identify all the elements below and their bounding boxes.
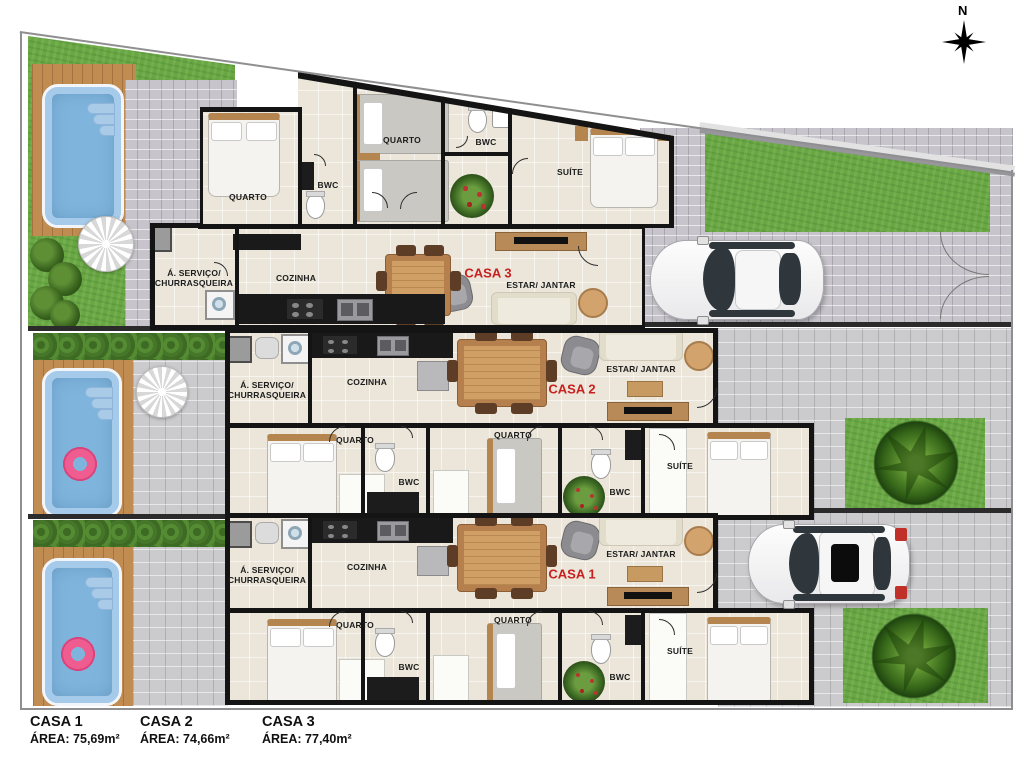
car-icon xyxy=(650,240,824,320)
wall xyxy=(441,152,512,156)
legend-casa3-area: ÁREA: 77,40m² xyxy=(262,732,352,746)
wall xyxy=(225,700,814,705)
pool-steps-icon xyxy=(91,398,113,409)
washing-machine-icon xyxy=(281,519,311,549)
house-name-label: CASA 3 xyxy=(464,266,511,281)
stove-icon xyxy=(323,336,357,354)
wall xyxy=(713,328,718,427)
wall xyxy=(150,223,202,228)
wall xyxy=(426,612,430,705)
double-bed xyxy=(707,432,771,522)
washing-machine-icon xyxy=(281,334,311,364)
bathroom-vanity xyxy=(300,162,314,190)
gate-pillar xyxy=(228,521,252,548)
pool-steps-icon xyxy=(87,103,115,114)
room-label-suite: SUÍTE xyxy=(667,461,693,471)
double-bed xyxy=(208,113,280,197)
legend-casa3-name: CASA 3 xyxy=(262,714,315,730)
pool-steps-icon xyxy=(97,599,113,610)
site-boundary xyxy=(20,708,1013,710)
laundry-basket xyxy=(255,337,279,359)
car-side-window xyxy=(709,310,795,317)
toilet-icon xyxy=(468,108,487,133)
bathroom-vanity xyxy=(625,430,641,460)
pool-steps-icon xyxy=(93,114,115,125)
toilet-icon xyxy=(375,631,395,657)
chair xyxy=(376,271,387,291)
room-label-quarto: QUARTO xyxy=(383,135,421,145)
room-label-cozinha: COZINHA xyxy=(347,377,387,387)
pool-steps-icon xyxy=(99,125,115,136)
legend-casa1-name: CASA 1 xyxy=(30,714,83,730)
chair xyxy=(475,588,497,599)
single-bed xyxy=(487,438,542,517)
room-label-cozinha: COZINHA xyxy=(276,273,316,283)
pool-steps-icon xyxy=(91,588,113,599)
room-label-quarto: QUARTO xyxy=(229,192,267,202)
car-windshield xyxy=(789,533,819,594)
single-bed xyxy=(354,160,449,222)
car-mirror xyxy=(783,600,795,609)
coffee-table xyxy=(627,381,663,397)
car-taillight xyxy=(895,586,907,599)
double-bed xyxy=(267,434,337,522)
wall xyxy=(235,224,239,330)
wall xyxy=(308,513,312,612)
car-side-window xyxy=(793,526,885,533)
round-table xyxy=(684,341,714,371)
stove-icon xyxy=(287,299,323,319)
room-label-quarto: QUARTO xyxy=(494,615,532,625)
house-name-label: CASA 2 xyxy=(548,382,595,397)
room-label-servico: Á. SERVIÇO/ CHURRASQUEIRA xyxy=(228,380,306,400)
fridge-icon xyxy=(417,546,449,576)
dining-table xyxy=(457,524,547,592)
compass-north-label: N xyxy=(958,3,967,18)
wall xyxy=(225,328,718,333)
plant-icon xyxy=(563,661,605,703)
stove-icon xyxy=(323,521,357,539)
wall xyxy=(713,608,814,613)
chair xyxy=(424,245,444,256)
room-label-estar: ESTAR/ JANTAR xyxy=(606,549,675,559)
wall xyxy=(558,612,562,705)
pool-float-icon xyxy=(60,636,96,672)
lot-divider-wall xyxy=(28,514,233,519)
hedge-casa2 xyxy=(33,333,228,360)
wall xyxy=(298,107,302,229)
room-label-suite: SUÍTE xyxy=(667,646,693,656)
wall xyxy=(713,513,718,612)
nightstand xyxy=(575,126,588,141)
room-label-bwc: BWC xyxy=(318,180,339,190)
tv-console xyxy=(607,587,689,606)
room-label-servico: Á. SERVIÇO/ CHURRASQUEIRA xyxy=(155,268,233,288)
bathroom-vanity xyxy=(625,615,641,645)
room-label-bwc: BWC xyxy=(610,487,631,497)
shower-icon xyxy=(367,492,419,515)
single-bed xyxy=(354,94,449,154)
car-icon xyxy=(748,524,910,604)
legend-casa2-area: ÁREA: 74,66m² xyxy=(140,732,230,746)
sofa xyxy=(599,329,683,361)
wall xyxy=(809,608,814,705)
room-label-bwc: BWC xyxy=(476,137,497,147)
toilet-icon xyxy=(591,637,611,664)
lot-divider-wall xyxy=(640,322,1013,327)
car-side-window xyxy=(793,594,885,601)
chair xyxy=(447,545,458,567)
car-rear-window xyxy=(779,253,801,305)
room-label-estar: ESTAR/ JANTAR xyxy=(506,280,575,290)
pool-steps-icon xyxy=(97,409,113,420)
wall xyxy=(641,612,645,705)
gate-pillar xyxy=(228,336,252,363)
pool-steps-icon xyxy=(85,387,113,398)
tv-console xyxy=(607,402,689,421)
room-label-estar: ESTAR/ JANTAR xyxy=(606,364,675,374)
car-taillight xyxy=(895,528,907,541)
wall xyxy=(558,427,562,520)
house-name-label: CASA 1 xyxy=(548,567,595,582)
umbrella-icon xyxy=(136,366,188,418)
pool-casa2 xyxy=(42,368,122,518)
car-sunroof xyxy=(831,544,859,582)
wardrobe xyxy=(433,655,469,702)
chair xyxy=(396,245,416,256)
chair xyxy=(511,588,533,599)
room-label-suite: SUÍTE xyxy=(557,167,583,177)
pool-steps-icon xyxy=(85,577,113,588)
car-mirror xyxy=(783,520,795,529)
sink-icon xyxy=(377,336,409,356)
room-label-quarto: QUARTO xyxy=(336,435,374,445)
sofa xyxy=(599,514,683,546)
car-windshield xyxy=(703,247,735,311)
room-label-quarto: QUARTO xyxy=(494,430,532,440)
wall xyxy=(198,107,302,112)
single-bed xyxy=(487,623,542,702)
laundry-basket xyxy=(255,522,279,544)
car-rear-window xyxy=(873,537,891,590)
car-mirror xyxy=(697,316,709,325)
chair xyxy=(546,545,557,567)
tv-console xyxy=(495,232,587,251)
umbrella-icon xyxy=(78,216,134,272)
room-label-bwc: BWC xyxy=(610,672,631,682)
pool-casa1 xyxy=(42,558,122,706)
site-plan: QUARTO BWC QUARTO BWC SUÍTE Á. SERVIÇO/ … xyxy=(0,0,1024,765)
pool-casa3 xyxy=(42,84,124,228)
wall xyxy=(198,224,672,229)
wall xyxy=(353,80,357,229)
wall xyxy=(713,423,814,428)
wall xyxy=(669,132,674,230)
shower-icon xyxy=(367,677,419,700)
room-label-cozinha: COZINHA xyxy=(347,562,387,572)
toilet-icon xyxy=(375,446,395,472)
wall xyxy=(809,423,814,520)
toilet-icon xyxy=(591,452,611,479)
plant-icon xyxy=(450,174,494,218)
legend-casa2-name: CASA 2 xyxy=(140,714,193,730)
dining-table xyxy=(457,339,547,407)
room-label-quarto: QUARTO xyxy=(336,620,374,630)
round-table xyxy=(578,288,608,318)
wall xyxy=(308,328,312,427)
double-bed xyxy=(707,617,771,707)
chair xyxy=(546,360,557,382)
room-label-bwc: BWC xyxy=(399,662,420,672)
hedge-casa1 xyxy=(33,520,228,547)
double-bed xyxy=(590,128,658,208)
room-label-servico: Á. SERVIÇO/ CHURRASQUEIRA xyxy=(228,565,306,585)
nightstand xyxy=(354,153,380,160)
site-boundary xyxy=(1011,170,1013,710)
tree-icon xyxy=(868,610,960,702)
washing-machine-icon xyxy=(205,290,235,320)
wall xyxy=(426,427,430,520)
patio-paving-casa1 xyxy=(133,547,228,706)
round-table xyxy=(684,526,714,556)
pool-float-icon xyxy=(62,446,98,482)
chair xyxy=(511,403,533,414)
sink-icon xyxy=(377,521,409,541)
plant-icon xyxy=(563,476,605,518)
wall xyxy=(508,96,512,229)
coffee-table xyxy=(627,566,663,582)
car-roof xyxy=(735,250,781,310)
wall xyxy=(641,427,645,520)
fridge-icon xyxy=(417,361,449,391)
site-boundary xyxy=(20,32,22,709)
room-label-bwc: BWC xyxy=(399,477,420,487)
sink-icon xyxy=(337,299,373,321)
chair xyxy=(447,360,458,382)
car-side-window xyxy=(709,242,795,249)
tree-icon xyxy=(870,417,962,509)
wardrobe xyxy=(433,470,469,517)
sofa xyxy=(491,292,577,325)
kitchen-counter xyxy=(233,234,301,250)
wall xyxy=(225,513,718,518)
toilet-icon xyxy=(306,194,325,219)
chair xyxy=(450,271,461,291)
wall xyxy=(441,90,445,229)
double-bed xyxy=(267,619,337,707)
legend-casa1-area: ÁREA: 75,69m² xyxy=(30,732,120,746)
car-mirror xyxy=(697,236,709,245)
chair xyxy=(475,403,497,414)
